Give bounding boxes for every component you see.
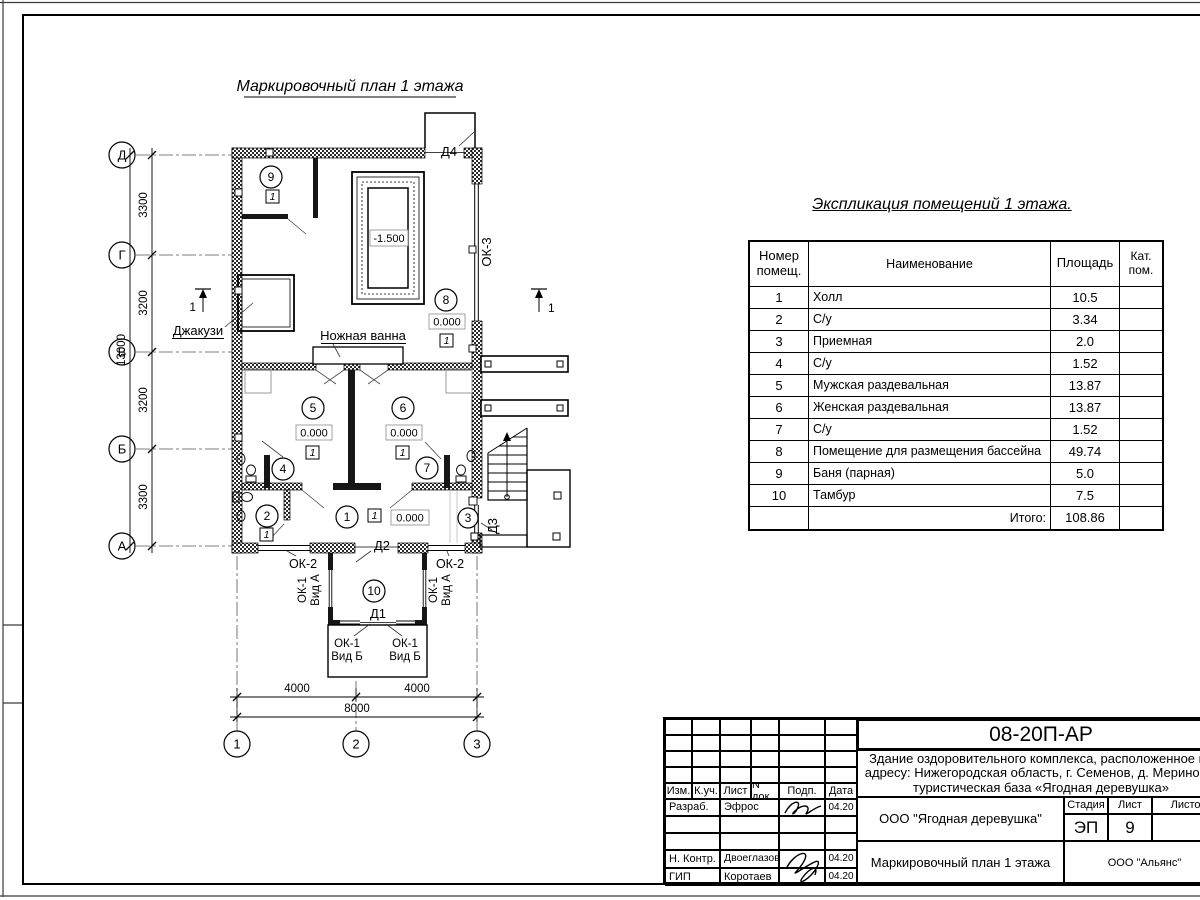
room-number: 10: [367, 584, 381, 598]
foot-bath-label: Ножная ванна: [320, 328, 407, 343]
dim-text: 4000: [404, 683, 430, 695]
table-row: 8 Помещение для размещения бассейна 49.7…: [749, 440, 1163, 462]
title-block: Изм. К.уч. Лист N док. Подп. Дата Разраб…: [663, 717, 1200, 884]
foot-bath: [313, 347, 403, 364]
room-area: 5.0: [1051, 462, 1120, 484]
axis-label: Г: [118, 248, 125, 263]
elevation-mark: 0.000: [396, 513, 424, 525]
window-label-ok1: ОК-1: [297, 577, 309, 603]
elevation-mark: 0.000: [300, 428, 328, 440]
schedule-title: Экспликация помещений 1 этажа.: [748, 196, 1136, 214]
room-number: 5: [310, 401, 317, 415]
bench: [481, 400, 568, 416]
gip-name: Коротаев: [720, 868, 779, 886]
gip-date: 04.20: [825, 868, 857, 886]
col-izm: Изм.: [665, 783, 692, 799]
room-cat: [1120, 308, 1164, 330]
nkontr-signature-cell: [779, 850, 825, 868]
dim-text: 4000: [284, 683, 310, 695]
room-number: 7: [424, 461, 431, 475]
door-label-d2: Д2: [374, 538, 390, 553]
project-line: Здание оздоровительного комплекса, распо…: [869, 752, 1200, 767]
axis-labels-bottom: 1 2 3: [233, 737, 480, 752]
exterior-stairs: [488, 428, 527, 500]
window-label-ok3: ОК-3: [479, 237, 494, 266]
col-ndok: N док.: [751, 783, 779, 799]
document-code: 08-20П-АР: [857, 719, 1200, 750]
table-row: 1 Холл 10.5: [749, 286, 1163, 308]
col-header-category: Кат. пом.: [1120, 241, 1164, 286]
floor-mark: 1: [264, 529, 270, 541]
room-number: 8: [443, 293, 450, 307]
room-name: Мужская раздевальная: [809, 374, 1051, 396]
dim-text-total: 13000: [116, 334, 128, 366]
col-header-number: Номер помещ.: [749, 241, 809, 286]
room-cat: [1120, 484, 1164, 506]
total-label: Итого:: [809, 506, 1051, 530]
room-num: 10: [749, 484, 809, 506]
room-area: 10.5: [1051, 286, 1120, 308]
room-cat: [1120, 330, 1164, 352]
client-organization: ООО "Ягодная деревушка": [857, 797, 1064, 841]
bench: [481, 356, 568, 372]
razrab-date: 04.20: [825, 799, 857, 816]
plan-title: Маркировочный план 1 этажа: [236, 78, 463, 97]
interior-walls-hatched: [242, 363, 472, 520]
empty-row-cell: [825, 833, 857, 850]
room-num: 9: [749, 462, 809, 484]
total-value: 108.86: [1051, 506, 1120, 530]
room-cat: [1120, 352, 1164, 374]
room-area: 13.87: [1051, 374, 1120, 396]
room-area: 1.52: [1051, 418, 1120, 440]
room-name: С/у: [809, 308, 1051, 330]
table-row: 10 Тамбур 7.5: [749, 484, 1163, 506]
dim-text: 3200: [138, 290, 150, 316]
col-header-area: Площадь: [1051, 241, 1120, 286]
section-number: 1: [548, 301, 555, 315]
section-marks: [195, 289, 547, 312]
table-row: 3 Приемная 2.0: [749, 330, 1163, 352]
empty-row-cell: [779, 833, 825, 850]
row-gip: ГИП: [665, 868, 720, 886]
floor-mark: 1: [270, 191, 276, 203]
empty-row-cell: [779, 816, 825, 833]
room-num: 4: [749, 352, 809, 374]
plan-title-text: Маркировочный план 1 этажа: [236, 78, 463, 95]
room-name: Тамбур: [809, 484, 1051, 506]
room-cat: [1120, 374, 1164, 396]
room-name: С/у: [809, 352, 1051, 374]
sheets-label: Листов: [1152, 797, 1200, 814]
window-view-b: Вид Б: [389, 651, 421, 663]
room-schedule-table: Номер помещ. Наименование Площадь Кат. п…: [748, 240, 1164, 531]
axis-label: Д: [118, 148, 127, 163]
stage-value: ЭП: [1064, 814, 1108, 841]
door-label-d3: Д3: [485, 518, 500, 534]
room-name: Приемная: [809, 330, 1051, 352]
room-number: 3: [465, 511, 472, 525]
room-area: 7.5: [1051, 484, 1120, 506]
window-label-ok1: ОК-1: [428, 577, 440, 603]
revision-grid: [665, 719, 857, 783]
axis-label: 1: [233, 737, 240, 752]
schedule-header-row: Номер помещ. Наименование Площадь Кат. п…: [749, 241, 1163, 286]
project-line: адресу: Нижегородская область, г. Семено…: [865, 766, 1200, 781]
opening-projection-lines: [450, 490, 457, 543]
sheet-label: Лист: [1108, 797, 1152, 814]
axis-label: 2: [352, 737, 359, 752]
dimension-texts-horizontal: 4000 4000 8000: [284, 683, 430, 715]
dim-text-total: 8000: [344, 703, 370, 715]
sheets-value: [1152, 814, 1200, 841]
door-label-d4: Д4: [441, 144, 457, 159]
window-view-a: Вид А: [310, 574, 322, 606]
room-area: 13.87: [1051, 396, 1120, 418]
dim-text: 3300: [138, 484, 150, 510]
document-name: Маркировочный план 1 этажа: [857, 841, 1064, 886]
axis-label: Б: [118, 442, 127, 457]
window-label-ok1: ОК-1: [334, 638, 360, 650]
empty-row-cell: [720, 816, 779, 833]
room-num: 5: [749, 374, 809, 396]
total-empty: [749, 506, 809, 530]
col-list: Лист: [720, 783, 751, 799]
table-row: 5 Мужская раздевальная 13.87: [749, 374, 1163, 396]
dim-text: 3300: [138, 192, 150, 218]
room-area: 49.74: [1051, 440, 1120, 462]
floor-mark: 1: [400, 447, 406, 459]
room-number: 9: [268, 170, 275, 184]
table-row: 7 С/у 1.52: [749, 418, 1163, 440]
jacuzzi: [238, 275, 294, 331]
drawing-sheet: { "plan": { "title": "Маркировочный план…: [0, 0, 1200, 900]
elevation-pool: -1.500: [373, 233, 404, 245]
section-number: 1: [189, 300, 196, 314]
window-label-ok2: ОК-2: [289, 557, 317, 571]
room-num: 3: [749, 330, 809, 352]
floor-mark: 1: [372, 510, 378, 522]
col-data: Дата: [825, 783, 857, 799]
project-line: туристическая база «Ягодная деревушка»: [913, 781, 1169, 796]
empty-row-cell: [665, 833, 720, 850]
elevation-mark: 0.000: [433, 317, 461, 329]
razrab-signature-cell: [779, 799, 825, 816]
room-num: 6: [749, 396, 809, 418]
row-razrab: Разраб.: [665, 799, 720, 816]
nkontr-name: Двоеглазов: [720, 850, 779, 868]
door-label-d1: Д1: [370, 606, 386, 621]
stage-label: Стадия: [1064, 797, 1108, 814]
gip-signature-cell: [779, 868, 825, 886]
room-num: 1: [749, 286, 809, 308]
table-row: 6 Женская раздевальная 13.87: [749, 396, 1163, 418]
room-num: 8: [749, 440, 809, 462]
window-view-a: Вид А: [441, 574, 453, 606]
empty-row-cell: [825, 816, 857, 833]
room-bubbles: [256, 166, 478, 602]
window-label-ok2: ОК-2: [436, 557, 464, 571]
window-view-b: Вид Б: [331, 651, 363, 663]
razrab-name: Эфрос: [720, 799, 779, 816]
table-row: 2 С/у 3.34: [749, 308, 1163, 330]
room-name: Женская раздевальная: [809, 396, 1051, 418]
room-name: Холл: [809, 286, 1051, 308]
room-name: Баня (парная): [809, 462, 1051, 484]
axis-label: 3: [473, 737, 480, 752]
room-num: 2: [749, 308, 809, 330]
room-area: 2.0: [1051, 330, 1120, 352]
design-company: ООО "Альянс": [1064, 841, 1200, 886]
axis-label: А: [118, 539, 127, 554]
table-row: 4 С/у 1.52: [749, 352, 1163, 374]
jacuzzi-label: Джакузи: [173, 323, 223, 338]
col-header-name: Наименование: [809, 241, 1051, 286]
room-cat: [1120, 418, 1164, 440]
schedule-total-row: Итого: 108.86: [749, 506, 1163, 530]
window-label-ok1: ОК-1: [392, 638, 418, 650]
elevation-mark: 0.000: [390, 428, 418, 440]
nkontr-date: 04.20: [825, 850, 857, 868]
col-podp: Подп.: [779, 783, 825, 799]
room-area: 3.34: [1051, 308, 1120, 330]
room-num: 7: [749, 418, 809, 440]
room-number: 1: [344, 510, 351, 524]
room-cat: [1120, 396, 1164, 418]
room-number: 4: [280, 462, 287, 476]
room-area: 1.52: [1051, 352, 1120, 374]
table-row: 9 Баня (парная) 5.0: [749, 462, 1163, 484]
empty-row-cell: [720, 833, 779, 850]
shower-trays: [245, 369, 472, 393]
room-cat: [1120, 440, 1164, 462]
floor-mark: 1: [444, 335, 450, 347]
floor-mark: 1: [310, 447, 316, 459]
col-kuch: К.уч.: [692, 783, 720, 799]
row-nkontr: Н. Контр.: [665, 850, 720, 868]
room-number: 2: [264, 509, 271, 523]
room-name: Помещение для размещения бассейна: [809, 440, 1051, 462]
project-description: Здание оздоровительного комплекса, распо…: [857, 750, 1200, 797]
sheet-value: 9: [1108, 814, 1152, 841]
room-cat: [1120, 286, 1164, 308]
vestibule-d4-outline: [425, 113, 475, 148]
empty-row-cell: [665, 816, 720, 833]
room-name: С/у: [809, 418, 1051, 440]
dim-text: 3200: [138, 387, 150, 413]
total-cat-empty: [1120, 506, 1164, 530]
room-number: 6: [400, 401, 407, 415]
room-cat: [1120, 462, 1164, 484]
elevation-marks: -1.500 0.000 0.000 0.000 0.000: [296, 230, 465, 525]
